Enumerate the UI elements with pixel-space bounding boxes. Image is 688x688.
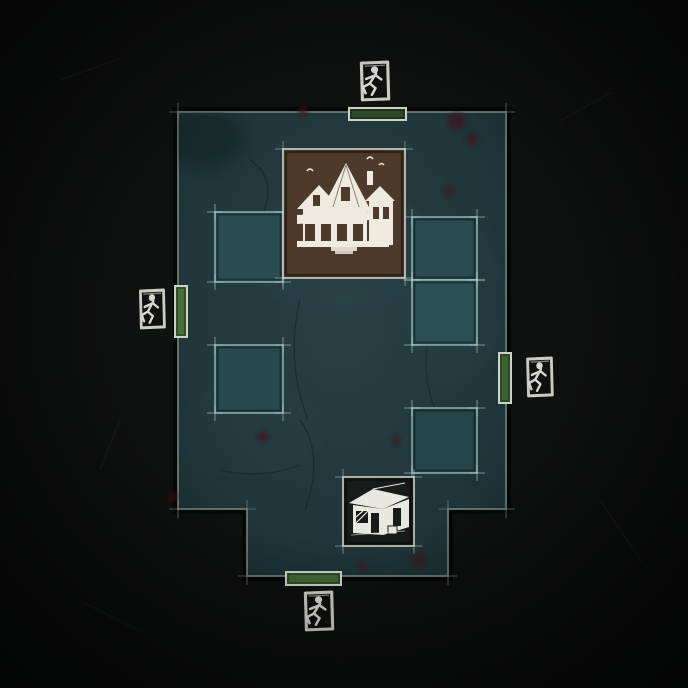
blood-stain	[411, 552, 427, 568]
tile-east-upper	[404, 209, 485, 288]
exit-gate-left[interactable]	[140, 286, 187, 337]
map-canvas	[0, 0, 688, 688]
blood-stain	[358, 562, 366, 570]
tile-east-lower	[404, 400, 485, 481]
killer-shack[interactable]	[335, 469, 422, 554]
blood-stain	[257, 431, 269, 443]
exit-gate-runner-icon[interactable]	[528, 358, 553, 396]
exit-gate-bottom[interactable]	[286, 572, 341, 630]
structure-tile	[412, 408, 477, 473]
blood-stain	[392, 437, 400, 445]
tile-west-upper	[207, 204, 291, 290]
background-scratch	[82, 602, 142, 632]
structure-tile	[215, 345, 283, 413]
structure-tile	[412, 280, 477, 345]
blood-stain	[466, 133, 478, 145]
exit-gate-runner-icon[interactable]	[305, 592, 332, 630]
map-overview-screen	[0, 0, 688, 688]
exit-gate-runner-icon[interactable]	[140, 290, 164, 328]
background-scratch	[60, 58, 122, 80]
blood-stain	[443, 185, 455, 197]
exit-gate-top[interactable]	[349, 62, 406, 120]
exit-gate-right[interactable]	[499, 353, 552, 403]
background-scratch	[100, 420, 120, 470]
tile-west-lower	[207, 337, 291, 421]
blood-stain	[448, 112, 466, 130]
background-scratch	[558, 92, 612, 122]
blood-stain	[298, 106, 308, 116]
blood-stain	[168, 492, 178, 502]
structure-tile	[412, 217, 477, 280]
exit-gate-runner-icon[interactable]	[361, 62, 388, 100]
main-building[interactable]	[275, 141, 413, 286]
background-scratch	[600, 500, 642, 562]
tile-east-middle	[404, 272, 485, 353]
structure-tile	[215, 212, 283, 282]
